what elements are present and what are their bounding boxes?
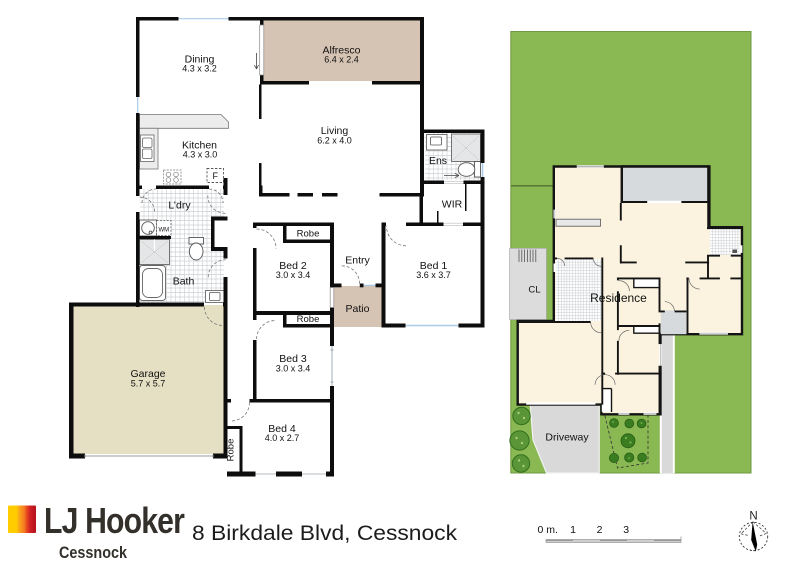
svg-text:N: N <box>749 511 757 523</box>
svg-text:4.3 x 3.2: 4.3 x 3.2 <box>182 64 217 74</box>
svg-text:6.4 x 2.4: 6.4 x 2.4 <box>324 55 359 65</box>
svg-text:8 Birkdale Blvd, Cessnock: 8 Birkdale Blvd, Cessnock <box>192 521 457 545</box>
svg-text:Driveway: Driveway <box>545 432 589 444</box>
svg-text:5.7 x 5.7: 5.7 x 5.7 <box>131 379 166 389</box>
svg-text:Patio: Patio <box>346 303 370 315</box>
svg-text:L’dry: L’dry <box>168 199 191 211</box>
svg-text:Robe: Robe <box>226 439 237 462</box>
svg-text:3.6 x 3.7: 3.6 x 3.7 <box>416 270 451 280</box>
svg-text:CL: CL <box>528 285 540 296</box>
svg-text:4.3 x 3.0: 4.3 x 3.0 <box>183 150 218 160</box>
svg-text:6.2 x 4.0: 6.2 x 4.0 <box>317 136 352 146</box>
svg-text:1: 1 <box>570 524 576 536</box>
svg-text:WIR: WIR <box>442 199 463 211</box>
svg-text:Robe: Robe <box>297 229 320 240</box>
svg-text:Entry: Entry <box>345 254 370 266</box>
svg-text:3.0 x 3.4: 3.0 x 3.4 <box>276 270 311 280</box>
svg-text:LJ Hooker: LJ Hooker <box>44 500 185 541</box>
svg-text:3.0 x 3.4: 3.0 x 3.4 <box>276 364 311 374</box>
svg-text:0 m.: 0 m. <box>538 524 558 536</box>
svg-text:4.0 x 2.7: 4.0 x 2.7 <box>265 433 300 443</box>
svg-text:2: 2 <box>597 524 603 536</box>
svg-text:Residence: Residence <box>590 291 647 305</box>
svg-text:Cessnock: Cessnock <box>59 544 128 562</box>
svg-text:F: F <box>213 171 219 181</box>
svg-text:3: 3 <box>623 524 629 536</box>
svg-text:Ens: Ens <box>429 155 447 167</box>
svg-text:Bath: Bath <box>173 275 195 287</box>
svg-text:WM: WM <box>158 228 169 234</box>
svg-text:Robe: Robe <box>297 314 320 325</box>
